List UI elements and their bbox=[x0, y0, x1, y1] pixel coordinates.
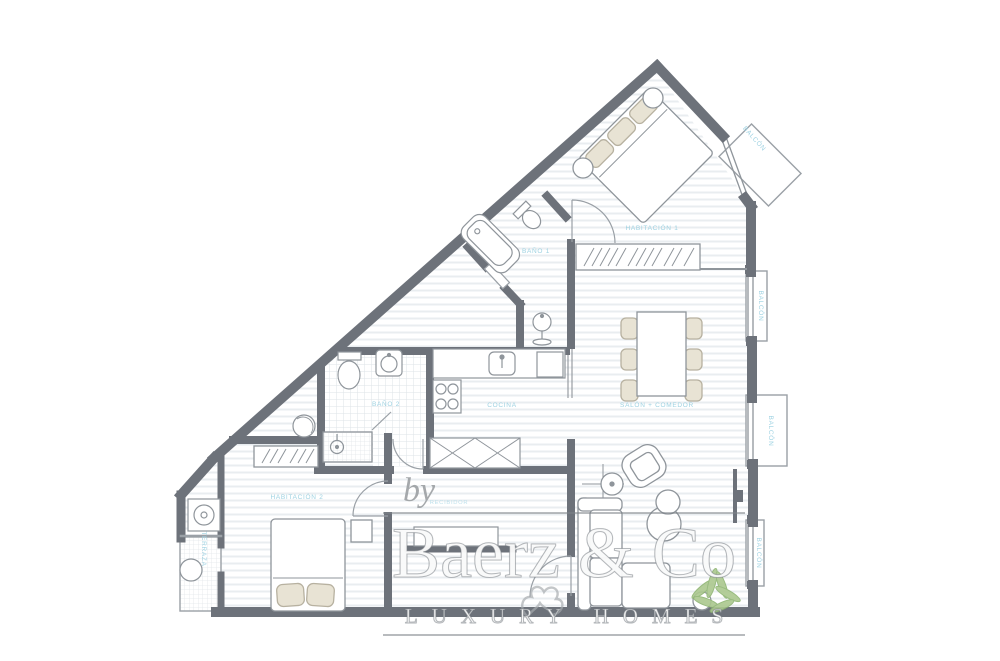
label-balcon2: BALCÓN bbox=[757, 291, 766, 322]
label-balcon3: BALCÓN bbox=[767, 416, 776, 447]
label-bano1: BAÑO 1 bbox=[522, 246, 550, 255]
label-salon-comedor: SALÓN + COMEDOR bbox=[620, 400, 694, 409]
closet-habitacion2 bbox=[254, 446, 318, 467]
label-balcon4: BALCÓN bbox=[755, 538, 764, 569]
floorplan-image: HABITACIÓN 1 BAÑO 1 SALÓN + COMEDOR COCI… bbox=[0, 0, 1000, 661]
kitchen-unit bbox=[537, 352, 563, 377]
stove bbox=[433, 380, 461, 413]
dining-set bbox=[621, 312, 702, 401]
dining-table bbox=[637, 312, 686, 396]
baerz-logo-mark bbox=[514, 583, 566, 621]
label-cocina: COCINA bbox=[487, 402, 516, 409]
pedestal-sink bbox=[533, 313, 551, 345]
label-recibidor: RECIBIDOR bbox=[430, 500, 469, 506]
shower bbox=[323, 432, 372, 462]
recibidor-console bbox=[414, 527, 498, 546]
bano2-sink bbox=[376, 350, 402, 376]
kitchen-island-cabinets bbox=[430, 438, 520, 468]
kitchen-sink bbox=[489, 352, 515, 375]
planter bbox=[180, 559, 202, 581]
floorplan-drawing: HABITACIÓN 1 BAÑO 1 SALÓN + COMEDOR COCI… bbox=[0, 0, 1000, 661]
label-habitacion2: HABITACIÓN 2 bbox=[270, 492, 323, 501]
balcony-right-2 bbox=[746, 395, 787, 466]
watermark-rule-bottom bbox=[383, 634, 745, 636]
nightstand-lamp bbox=[573, 158, 593, 178]
pouf-small bbox=[656, 490, 680, 514]
nightstand-lamp bbox=[643, 88, 663, 108]
watermark-rule-top bbox=[383, 512, 745, 514]
label-habitacion1: HABITACIÓN 1 bbox=[625, 223, 678, 232]
bano2-toilet bbox=[338, 352, 361, 389]
label-bano2: BAÑO 2 bbox=[372, 399, 400, 408]
nightstand bbox=[351, 520, 372, 542]
label-terraza: TERRAZA bbox=[200, 531, 207, 566]
chaise bbox=[622, 563, 670, 608]
laundry-basket bbox=[293, 415, 315, 437]
